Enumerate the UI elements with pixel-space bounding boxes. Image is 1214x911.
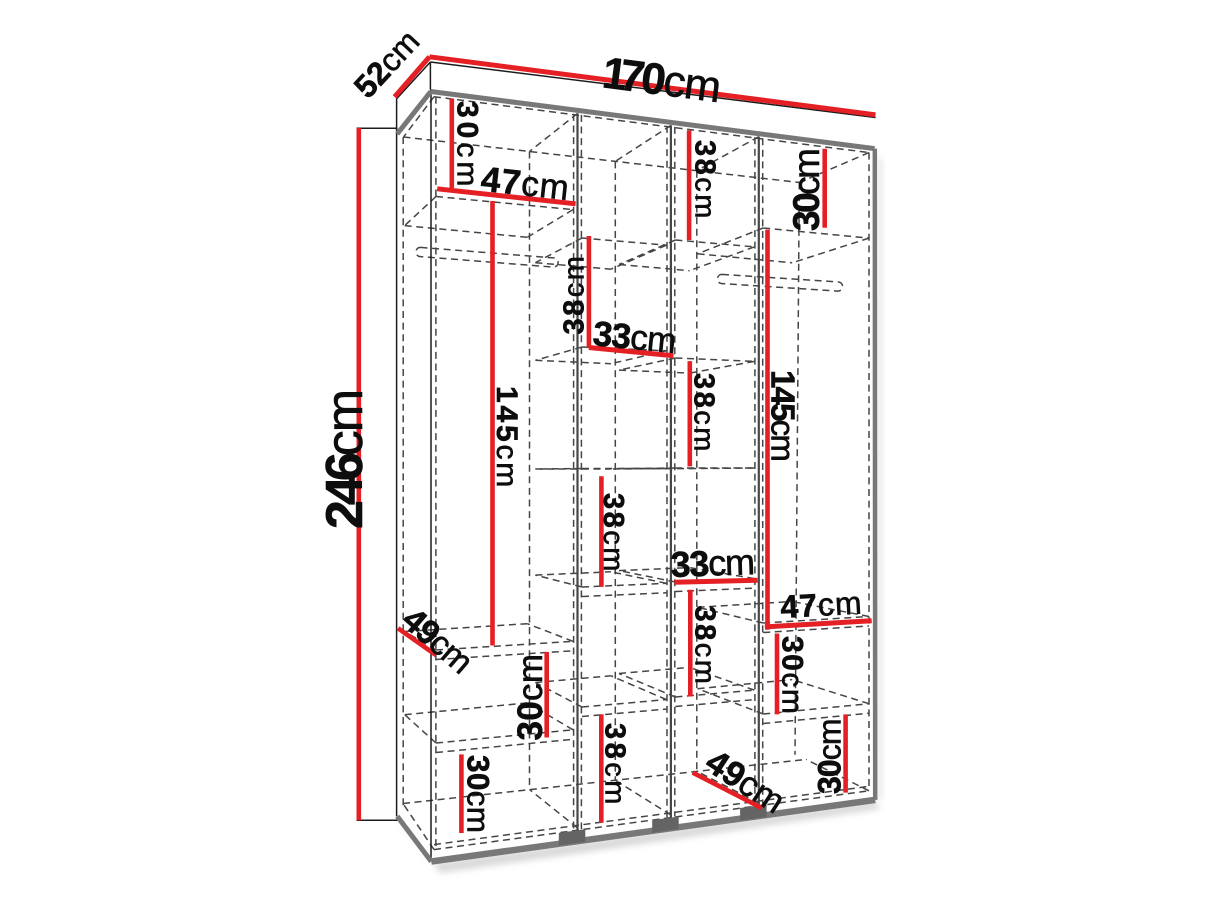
svg-text:38cm: 38cm <box>599 723 631 808</box>
svg-text:145cm: 145cm <box>490 386 523 490</box>
svg-text:145cm: 145cm <box>765 370 802 460</box>
svg-text:30cm: 30cm <box>786 150 827 231</box>
svg-text:38cm: 38cm <box>597 493 629 574</box>
svg-text:38cm: 38cm <box>689 140 721 221</box>
svg-text:38cm: 38cm <box>688 373 720 454</box>
svg-text:38cm: 38cm <box>559 254 591 335</box>
svg-text:33cm: 33cm <box>670 541 755 585</box>
svg-text:33cm: 33cm <box>591 314 677 361</box>
svg-text:30cm: 30cm <box>461 755 497 833</box>
svg-text:30cm: 30cm <box>451 101 484 190</box>
svg-text:246cm: 246cm <box>316 389 374 529</box>
svg-text:47cm: 47cm <box>779 584 863 625</box>
svg-text:38cm: 38cm <box>689 606 721 687</box>
svg-text:30cm: 30cm <box>812 719 848 794</box>
svg-text:30cm: 30cm <box>776 636 809 715</box>
svg-text:30cm: 30cm <box>511 654 550 741</box>
